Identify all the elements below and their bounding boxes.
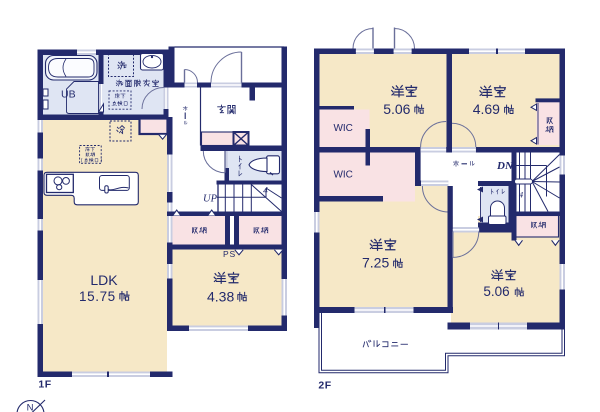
svg-text:15.75: 15.75 (79, 289, 116, 304)
svg-text:UB: UB (61, 88, 76, 100)
svg-text:5.06: 5.06 (483, 284, 509, 299)
svg-text:1F: 1F (38, 379, 51, 391)
svg-text:WIC: WIC (333, 123, 352, 134)
svg-text:LDK: LDK (90, 272, 118, 288)
svg-text:UP: UP (203, 194, 218, 205)
svg-text:PS: PS (223, 249, 236, 259)
svg-text:7.25: 7.25 (362, 255, 389, 271)
svg-text:WIC: WIC (333, 169, 352, 180)
svg-text:DN: DN (496, 160, 514, 172)
svg-text:4.38: 4.38 (207, 289, 234, 305)
svg-text:2F: 2F (318, 379, 331, 391)
svg-text:4.69: 4.69 (473, 101, 500, 117)
svg-text:5.06: 5.06 (383, 101, 410, 117)
svg-text:4: 4 (263, 187, 268, 197)
svg-text:N: N (27, 403, 34, 412)
